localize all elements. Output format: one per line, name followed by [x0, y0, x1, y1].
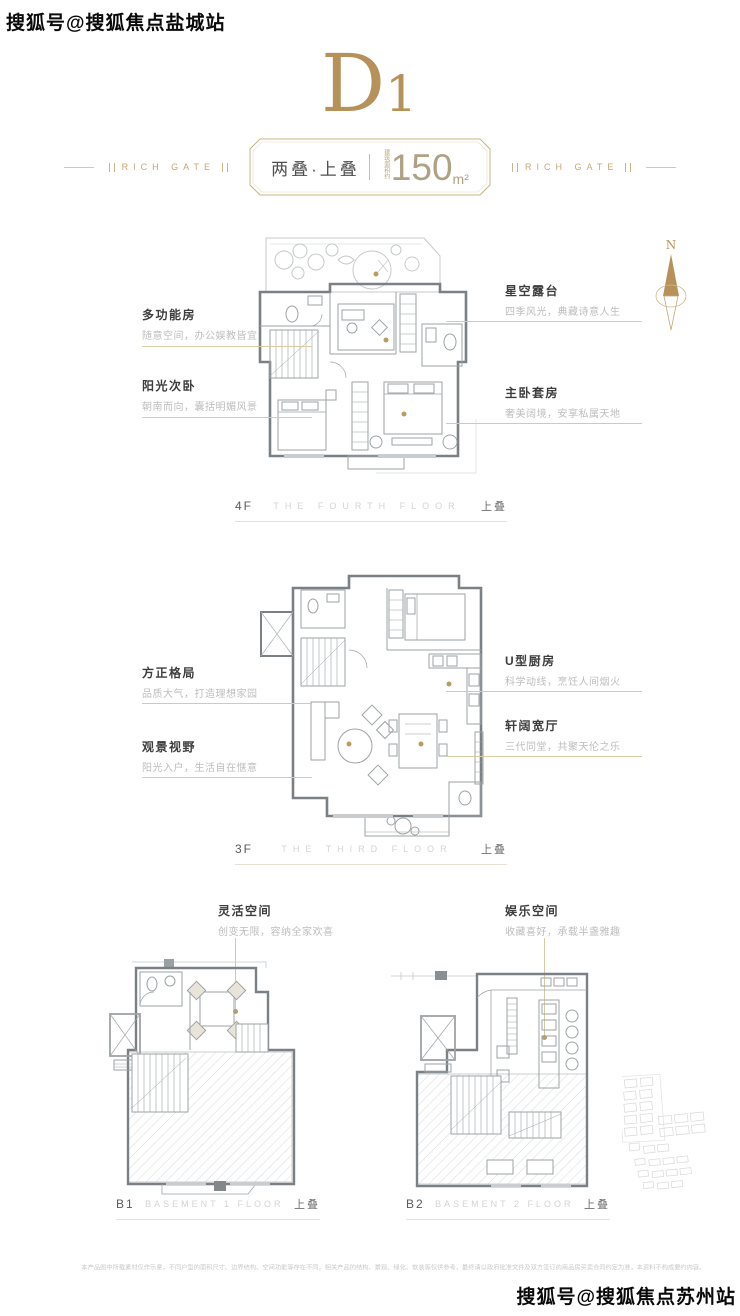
fence-icon — [625, 163, 631, 172]
floorplan-4f — [226, 230, 512, 502]
floor-caption-en: THE THIRD FLOOR — [253, 844, 481, 854]
floor-id: B1 — [116, 1197, 135, 1211]
page-title: D1 — [0, 44, 740, 124]
brand-text: RICH GATE — [122, 162, 215, 172]
area-value: 150 — [391, 149, 453, 186]
label-title: 灵活空间 — [218, 902, 398, 919]
floorplan-b2 — [391, 954, 605, 1198]
leader-line — [142, 346, 312, 347]
floor-caption-en: BASEMENT 2 FLOOR — [425, 1199, 584, 1209]
brand-left: RICH GATE — [102, 162, 235, 172]
label-desc: 奢美阔境，安享私属天地 — [505, 405, 685, 420]
stack-label: 上叠 — [481, 498, 507, 514]
label-square-layout: 方正格局 品质大气，打造理想家园 — [142, 664, 322, 700]
label-title: 轩阔宽厅 — [505, 717, 685, 734]
caption-4f: 4F THE FOURTH FLOOR 上叠 — [235, 498, 507, 522]
area-unit: m² — [453, 171, 469, 187]
label-entertainment-space: 娱乐空间 收藏喜好，承载半盏雅趣 — [505, 902, 685, 938]
leader-line — [446, 423, 642, 424]
band-line — [64, 167, 94, 168]
leader-line — [446, 756, 642, 757]
label-desc: 阳光入户，生活自在惬意 — [142, 759, 322, 774]
site-plan-minimap — [622, 1070, 710, 1194]
label-desc: 品质大气，打造理想家园 — [142, 685, 322, 700]
leader-line — [142, 777, 312, 778]
label-sunny-bedroom: 阳光次卧 朝南而向，囊括明媚风景 — [142, 377, 322, 413]
disclaimer-text: 本产品图中所载素材仅作示意，不同户型的面积尺寸、边界结构、空间功能等存在不同，相… — [81, 1263, 658, 1272]
unit-letter: D — [321, 37, 385, 130]
label-view: 观景视野 阳光入户，生活自在惬意 — [142, 738, 322, 774]
label-desc: 科学动线，烹饪人间烟火 — [505, 673, 685, 688]
label-grand-hall: 轩阔宽厅 三代同堂，共聚天伦之乐 — [505, 717, 685, 753]
label-desc: 四季风光，典藏诗意人生 — [505, 303, 685, 318]
badge-divider — [369, 154, 370, 180]
area-badge: 两叠·上叠 建筑面积约 150 m² — [249, 138, 491, 196]
leader-line — [446, 321, 642, 322]
area-prefix: 建筑面积约 — [382, 149, 389, 185]
caption-b1: B1 BASEMENT 1 FLOOR 上叠 — [116, 1196, 320, 1220]
label-desc: 随意空间，办公娱教皆宜 — [142, 327, 322, 342]
stack-label: 上叠 — [584, 1196, 610, 1212]
label-desc: 创变无限，容纳全家欢喜 — [218, 923, 398, 938]
label-title: 主卧套房 — [505, 384, 685, 401]
floor-caption-en: THE FOURTH FLOOR — [253, 501, 481, 511]
floorplan-brochure: 搜狐号@搜狐焦点盐城站 搜狐号@搜狐焦点苏州站 D1 RICH GATE 两叠·… — [0, 0, 740, 1316]
label-title: U型厨房 — [505, 652, 685, 669]
floorplan-3f — [253, 554, 505, 848]
label-title: 阳光次卧 — [142, 377, 322, 394]
label-title: 方正格局 — [142, 664, 322, 681]
fence-icon — [512, 163, 518, 172]
floor-caption-en: BASEMENT 1 FLOOR — [135, 1199, 294, 1209]
leader-line — [142, 417, 312, 418]
label-master-suite: 主卧套房 奢美阔境，安享私属天地 — [505, 384, 685, 420]
band-line — [646, 167, 676, 168]
stack-label: 上叠 — [481, 841, 507, 857]
floorplan-b1 — [106, 954, 320, 1198]
layout-type: 两叠·上叠 — [271, 155, 360, 180]
floor-id: B2 — [406, 1197, 425, 1211]
caption-3f: 3F THE THIRD FLOOR 上叠 — [235, 841, 507, 865]
caption-b2: B2 BASEMENT 2 FLOOR 上叠 — [406, 1196, 610, 1220]
leader-line — [446, 691, 642, 692]
fence-icon — [109, 163, 115, 172]
label-title: 娱乐空间 — [505, 902, 685, 919]
label-star-terrace: 星空露台 四季风光，典藏诗意人生 — [505, 282, 685, 318]
fence-icon — [222, 163, 228, 172]
floor-id: 4F — [235, 499, 253, 513]
floor-id: 3F — [235, 842, 253, 856]
watermark-top: 搜狐号@搜狐焦点盐城站 — [6, 8, 226, 35]
label-desc: 三代同堂，共聚天伦之乐 — [505, 738, 685, 753]
label-desc: 收藏喜好，承载半盏雅趣 — [505, 923, 685, 938]
label-title: 观景视野 — [142, 738, 322, 755]
header-band: RICH GATE 两叠·上叠 建筑面积约 150 m² RICH GATE — [0, 136, 740, 198]
label-desc: 朝南而向，囊括明媚风景 — [142, 398, 322, 413]
label-title: 多功能房 — [142, 306, 322, 323]
brand-right: RICH GATE — [505, 162, 638, 172]
brand-text: RICH GATE — [525, 162, 618, 172]
leader-line — [142, 703, 312, 704]
unit-number: 1 — [385, 65, 419, 123]
label-u-kitchen: U型厨房 科学动线，烹饪人间烟火 — [505, 652, 685, 688]
label-multifunction-room: 多功能房 随意空间，办公娱教皆宜 — [142, 306, 322, 342]
stack-label: 上叠 — [294, 1196, 320, 1212]
watermark-bottom: 搜狐号@搜狐焦点苏州站 — [516, 1282, 736, 1309]
label-title: 星空露台 — [505, 282, 685, 299]
compass-north-label: N — [645, 238, 697, 252]
label-flex-space: 灵活空间 创变无限，容纳全家欢喜 — [218, 902, 398, 938]
